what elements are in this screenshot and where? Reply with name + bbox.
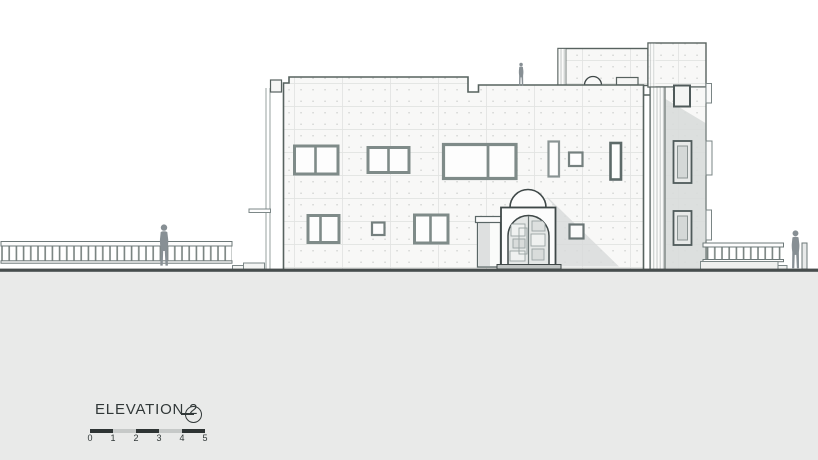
left-railing: [1, 242, 265, 271]
ground-fill: [0, 271, 818, 460]
window: [308, 216, 339, 243]
tower-window-top: [674, 86, 690, 107]
roof-structure: [558, 49, 648, 86]
window: [368, 148, 409, 174]
scale-figure-right: [792, 230, 800, 268]
slot-window: [611, 143, 622, 180]
tower-window-mid: [674, 141, 692, 183]
end-post: [802, 243, 807, 269]
square-window: [570, 225, 584, 239]
right-tower: [644, 43, 713, 270]
window: [415, 215, 449, 243]
elevation-drawing: [0, 0, 818, 460]
square-window: [372, 223, 385, 236]
pilaster-cap: [271, 80, 282, 92]
tower-window-low: [674, 211, 692, 245]
tower-fin: [706, 84, 712, 104]
side-ledge: [249, 209, 271, 213]
window: [295, 146, 339, 174]
railing-top-rail: [703, 243, 784, 247]
entry-porch: [476, 217, 503, 268]
window: [444, 145, 517, 179]
tower-fin: [706, 210, 712, 240]
elevation-sheet: ELEVATION 2 012345: [0, 0, 818, 460]
tower-edge-strip: [650, 87, 665, 270]
door-threshold: [497, 265, 561, 270]
railing-bottom-rail: [1, 261, 232, 263]
tower-upper-box: [648, 43, 706, 87]
tower-fin: [706, 141, 712, 175]
roof-box: [617, 78, 639, 86]
scale-figure-roof: [519, 63, 524, 86]
railing-top-rail: [1, 242, 232, 247]
ground-line: [0, 269, 818, 272]
right-railing: [701, 243, 808, 271]
porch-cap: [476, 217, 503, 223]
left-pilaster: [249, 80, 282, 269]
square-window: [569, 153, 583, 167]
slot-window: [549, 142, 560, 177]
